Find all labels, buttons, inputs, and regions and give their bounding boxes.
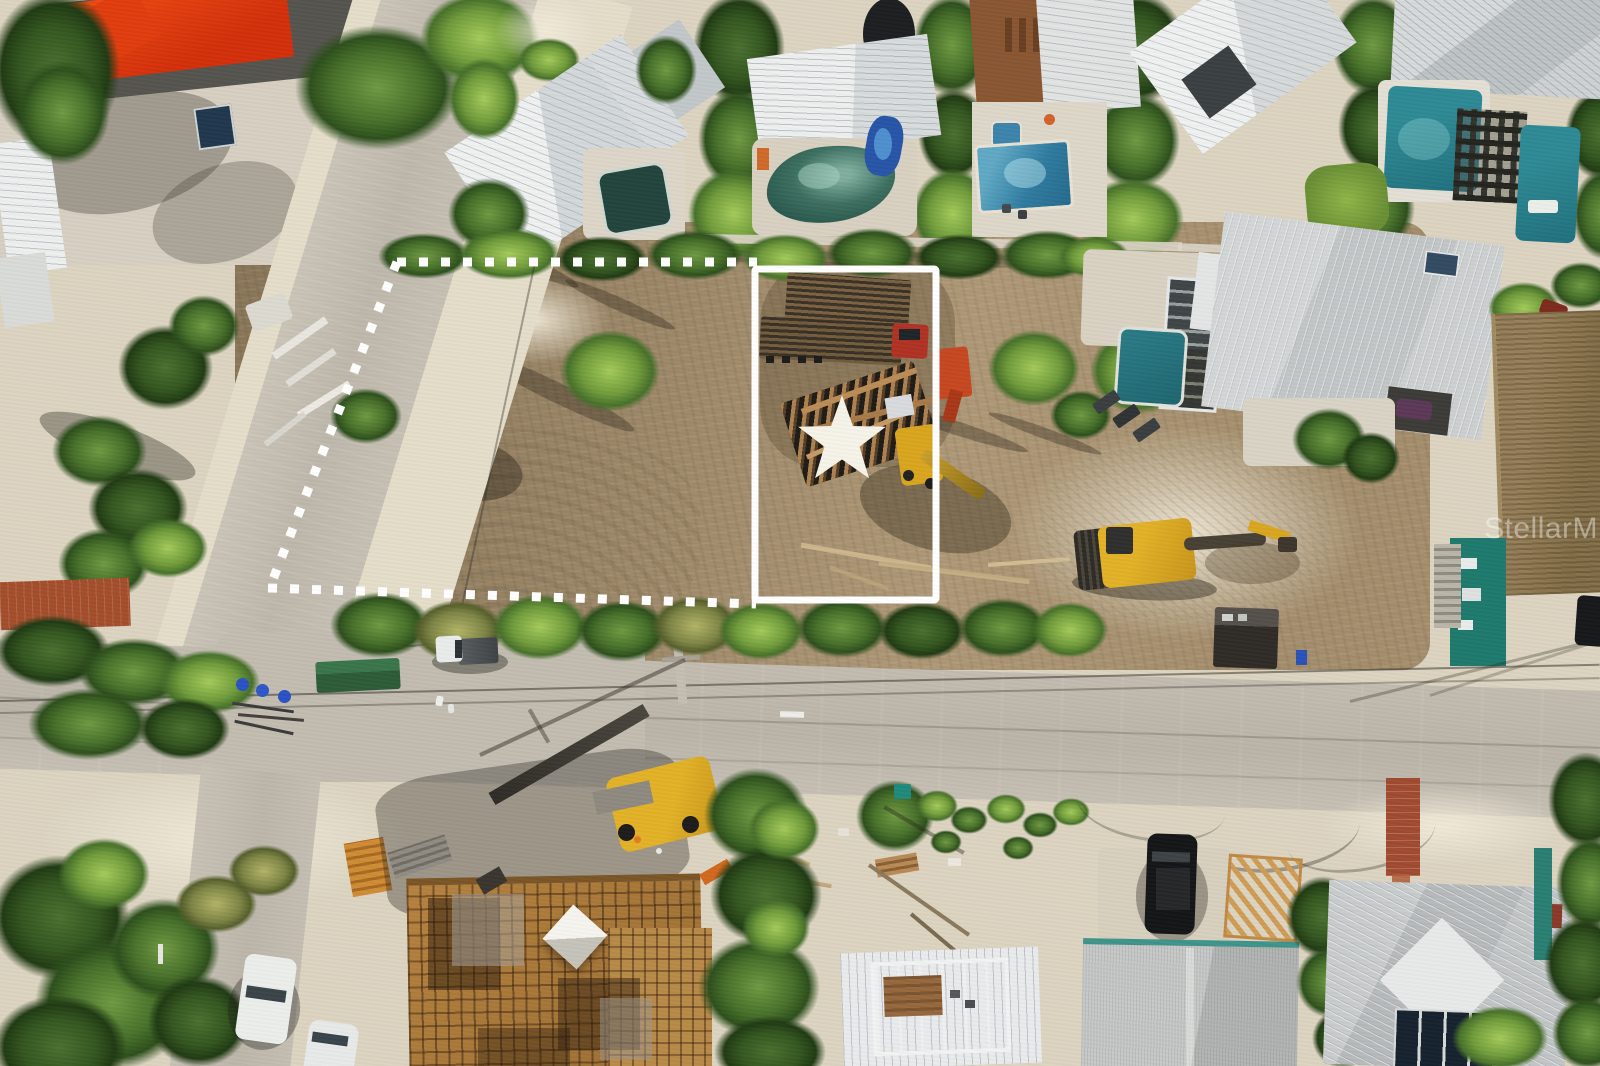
lot-hedge-top	[378, 233, 470, 279]
roadside-hedge	[492, 594, 588, 660]
pool-highlight	[1398, 118, 1450, 160]
deck-dark-patch	[478, 1028, 570, 1066]
small-pool	[595, 160, 675, 237]
hedge-column	[742, 898, 810, 958]
white-chairs	[1528, 200, 1558, 213]
shed-vent	[1238, 614, 1247, 621]
worker	[656, 848, 662, 854]
white-debris	[948, 858, 961, 866]
patio-furniture	[1018, 210, 1027, 219]
lot-hedge-top	[646, 230, 743, 280]
gray-roof-wing	[0, 252, 55, 328]
black-suv-on-road	[1574, 595, 1600, 647]
red-brick-path	[1386, 778, 1420, 876]
hedge	[28, 688, 150, 760]
worker	[634, 836, 641, 843]
aerial-photo: StellarMLS	[0, 0, 1600, 1066]
deck-furniture	[950, 990, 960, 998]
green-bin	[894, 784, 911, 799]
truck-windshield	[455, 640, 462, 658]
roadside-hedge	[878, 602, 966, 660]
telehandler-wheel	[903, 470, 914, 481]
roof-ridge	[1186, 948, 1194, 1066]
suv-windshield	[1152, 851, 1190, 862]
dumpster	[315, 658, 401, 693]
pedestrian	[448, 704, 455, 713]
excavator-cab	[1106, 527, 1133, 554]
deck-furniture	[965, 1000, 975, 1008]
white-roof	[1036, 0, 1141, 113]
hedge	[138, 698, 230, 760]
palms	[1342, 432, 1400, 484]
blue-barrel	[256, 684, 269, 697]
pergola-lattice	[1453, 108, 1528, 204]
deck-gray-patch	[452, 894, 524, 966]
suv-roof-highlight	[1156, 868, 1190, 910]
roadside-hedge	[796, 598, 888, 658]
blue-barrel	[236, 678, 249, 691]
board-shadow	[868, 863, 970, 936]
trees	[15, 60, 110, 165]
sign-post	[158, 944, 163, 964]
patio-furniture	[1002, 204, 1011, 213]
skylight	[1423, 250, 1461, 278]
tree-over-road	[168, 295, 240, 357]
teal-pool	[1515, 125, 1581, 244]
lane-marking	[780, 711, 804, 718]
spoil-mound	[1205, 542, 1300, 584]
trees	[58, 838, 150, 910]
crane-wheel	[618, 824, 635, 841]
brown-shingle-roof	[1491, 310, 1600, 596]
hedge	[128, 518, 208, 578]
deck-gray-patch	[600, 998, 652, 1060]
telehandler-wheel	[925, 478, 936, 489]
solar-panel	[193, 104, 236, 151]
pool-highlight	[1004, 158, 1046, 188]
lot-hedge-top	[458, 228, 560, 280]
rooftop-wood-deck	[883, 975, 942, 1017]
shrub	[1002, 836, 1034, 860]
crane-wheel	[682, 816, 699, 833]
orange-towel	[757, 148, 769, 170]
roadside-hedge	[1032, 602, 1108, 658]
blue-bin	[1296, 650, 1307, 665]
truck-bed	[457, 637, 498, 665]
lot-hedge-top	[914, 234, 1004, 280]
orange-ring-float	[1044, 114, 1055, 125]
truck-windshield	[899, 329, 920, 340]
shed-vent	[1222, 614, 1233, 621]
lot-hedge-top	[556, 236, 648, 282]
watermark: StellarMLS	[1484, 512, 1600, 546]
lot-hedge-top	[826, 228, 918, 278]
palms	[635, 35, 697, 105]
blue-slide-swirl	[874, 128, 892, 160]
roadside-hedge	[718, 602, 804, 660]
lot-palm	[330, 388, 402, 444]
teal-pool	[1113, 326, 1188, 409]
trailer-wheels	[766, 356, 826, 363]
hedge-column	[748, 798, 820, 860]
pool-highlight	[798, 163, 840, 189]
ac-unit	[1460, 558, 1477, 569]
lot-palm	[560, 330, 660, 412]
shrub	[930, 830, 962, 854]
palms	[448, 58, 520, 140]
shrub	[986, 794, 1026, 824]
corner-palm-fronds	[1452, 1006, 1548, 1066]
boardwalk-steps	[1434, 544, 1461, 628]
dry-shrubs	[228, 845, 300, 897]
white-debris	[838, 828, 849, 836]
blue-barrel	[278, 690, 291, 703]
shrub	[950, 806, 988, 834]
ac-unit	[1462, 588, 1481, 601]
